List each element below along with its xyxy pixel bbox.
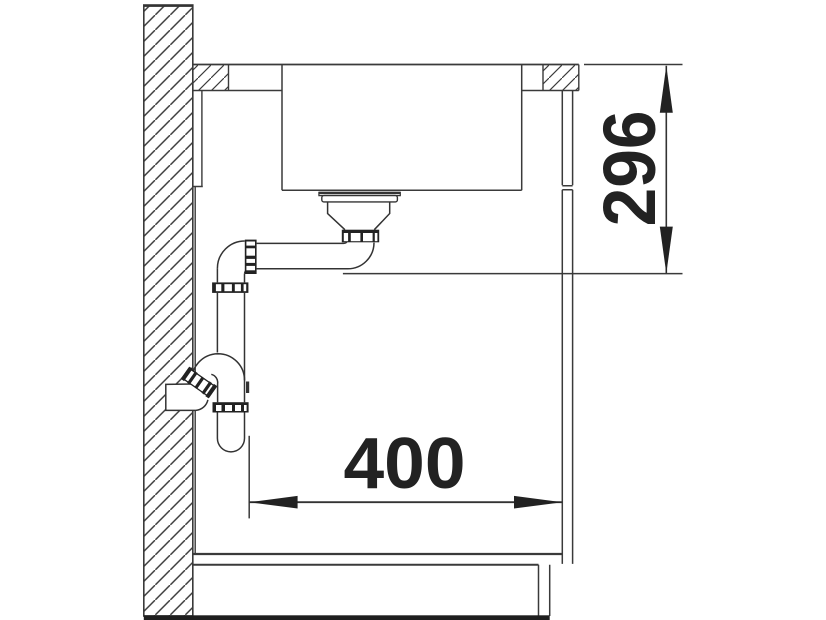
svg-text:296: 296 — [588, 110, 671, 226]
svg-text:400: 400 — [344, 424, 466, 504]
